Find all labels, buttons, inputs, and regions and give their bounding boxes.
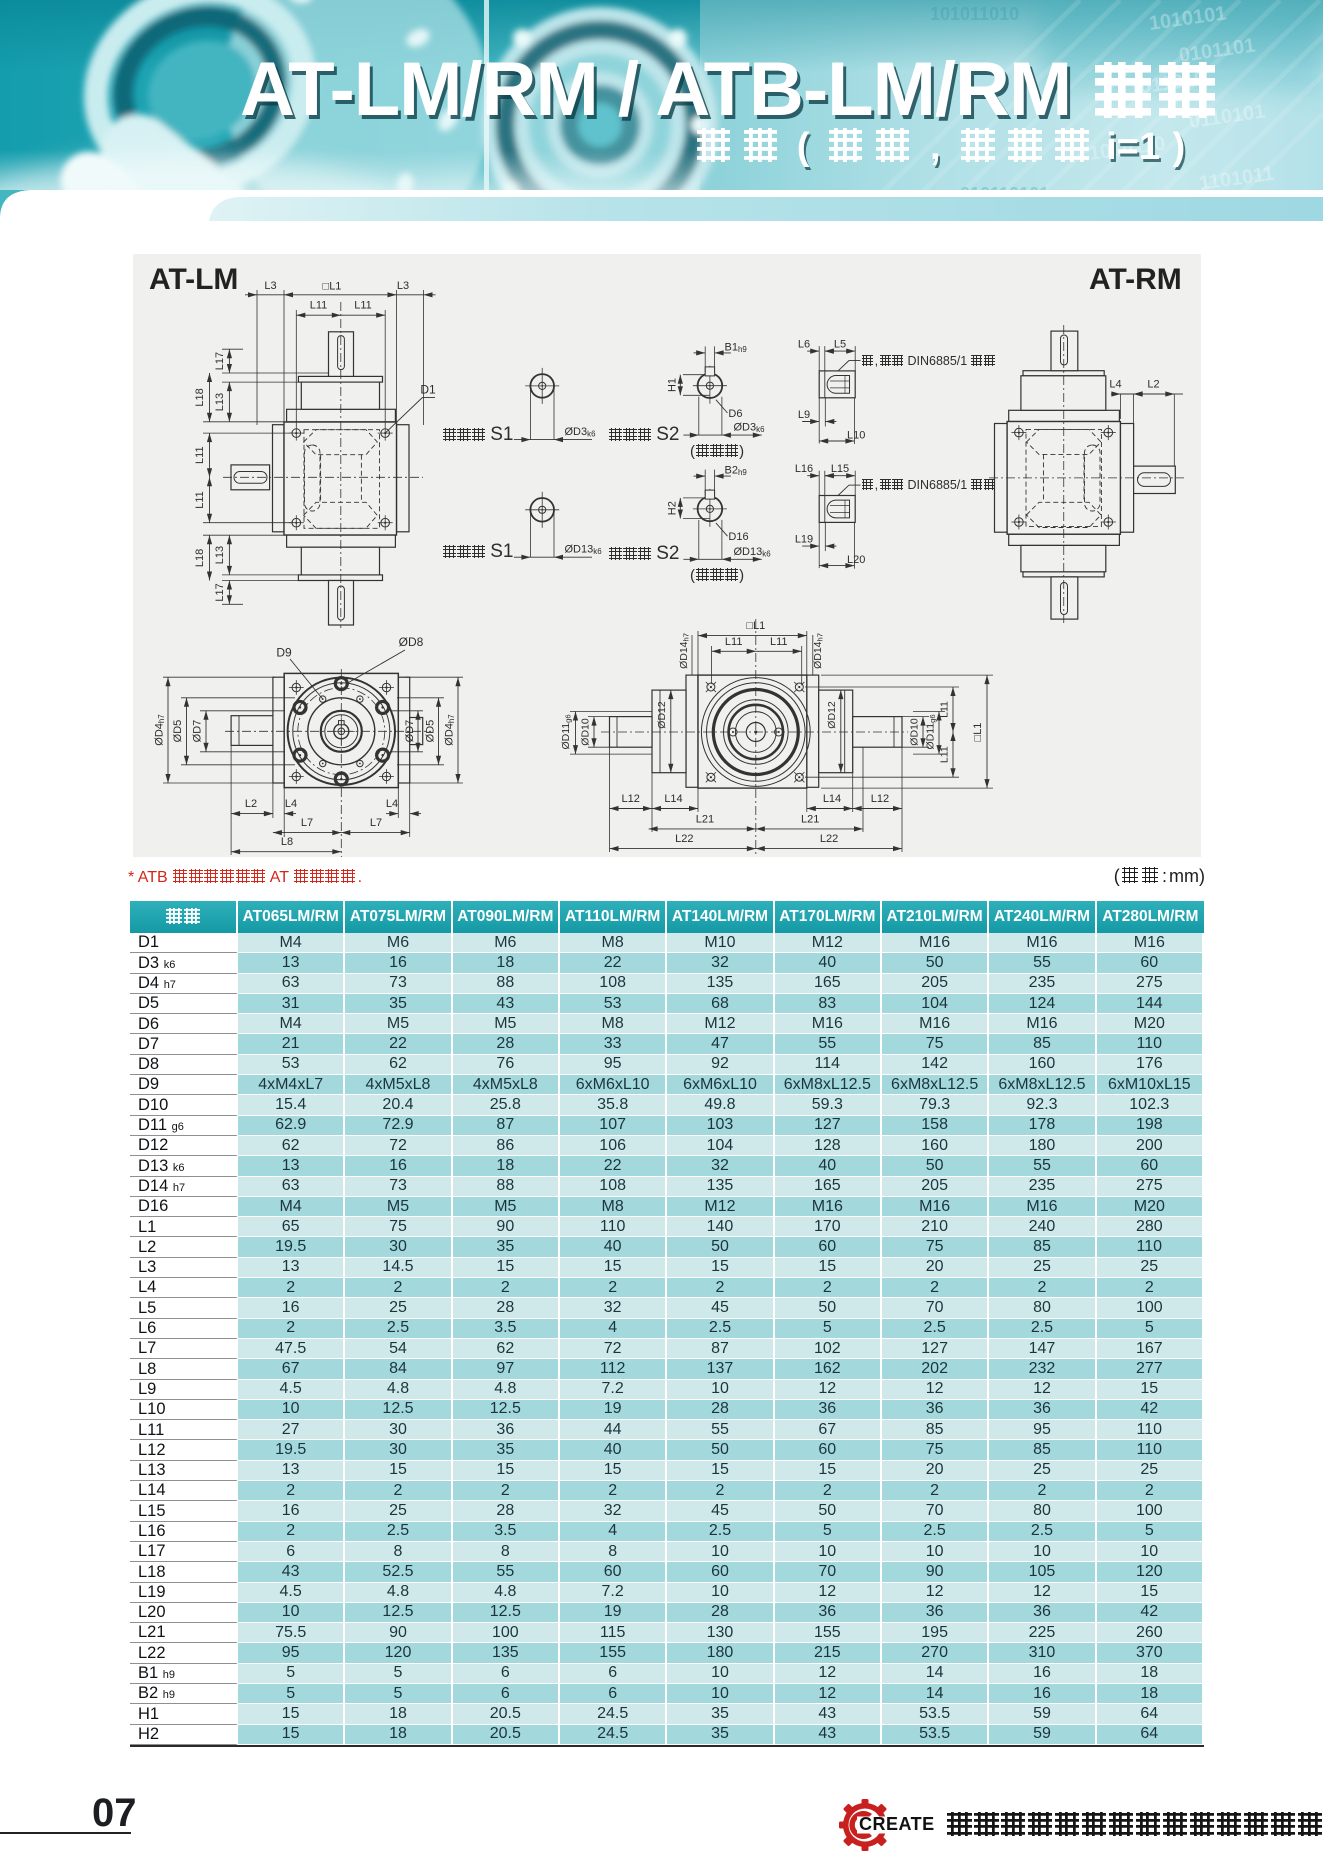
svg-text:D1: D1 (420, 383, 436, 397)
svg-text:ØD12: ØD12 (826, 701, 838, 729)
svg-text:D9: D9 (276, 646, 292, 660)
svg-text:ØD5: ØD5 (172, 720, 184, 743)
svg-text:ØD7: ØD7 (404, 720, 416, 743)
svg-text:L4: L4 (285, 798, 297, 810)
svg-text:L11: L11 (939, 701, 951, 718)
svg-text:D6: D6 (728, 408, 742, 420)
svg-text:ØD10: ØD10 (580, 718, 592, 746)
svg-text:L17: L17 (214, 352, 226, 370)
svg-text:H1: H1 (667, 378, 679, 392)
svg-text:L13: L13 (214, 546, 226, 564)
svg-text:L6: L6 (798, 338, 810, 350)
svg-text:L4: L4 (1109, 379, 1121, 391)
svg-text:L5: L5 (834, 338, 846, 350)
svg-text:L18: L18 (194, 388, 206, 406)
svg-text:L8: L8 (281, 836, 293, 848)
svg-text:L9: L9 (798, 409, 810, 421)
svg-text:L22: L22 (675, 833, 693, 845)
svg-text:H2: H2 (667, 501, 679, 515)
svg-text:L21: L21 (801, 814, 819, 826)
svg-text:L22: L22 (820, 833, 838, 845)
svg-text:ØD12: ØD12 (656, 701, 668, 729)
svg-text:L11: L11 (939, 746, 951, 763)
svg-text:L19: L19 (795, 534, 813, 546)
svg-text:L10: L10 (847, 430, 865, 442)
svg-text:□L1: □L1 (746, 620, 765, 632)
svg-text:L20: L20 (847, 554, 865, 566)
svg-text:ØD5: ØD5 (425, 720, 437, 743)
svg-text:□L1: □L1 (972, 723, 984, 742)
svg-text:L11: L11 (310, 300, 328, 312)
svg-text:L15: L15 (831, 463, 849, 475)
svg-text:L16: L16 (795, 463, 813, 475)
svg-text:CREATE: CREATE (859, 1814, 935, 1834)
svg-text:L17: L17 (214, 583, 226, 601)
svg-text:L7: L7 (301, 817, 313, 829)
svg-text:L4: L4 (386, 798, 398, 810)
svg-text:101011010: 101011010 (930, 4, 1019, 24)
svg-text:L2: L2 (1147, 379, 1159, 391)
svg-text:ØD8: ØD8 (399, 635, 424, 649)
svg-text:L7: L7 (370, 817, 382, 829)
svg-text:□L1: □L1 (323, 281, 342, 293)
svg-text:ØD10: ØD10 (909, 718, 921, 746)
svg-text:L12: L12 (622, 793, 640, 805)
svg-text:L3: L3 (397, 280, 409, 292)
svg-text:L11: L11 (725, 636, 743, 648)
svg-text:D16: D16 (728, 531, 748, 543)
svg-text:L11: L11 (194, 491, 206, 509)
svg-text:L11: L11 (194, 446, 206, 464)
svg-text:L14: L14 (664, 793, 682, 805)
svg-text:L13: L13 (214, 393, 226, 411)
svg-text:L18: L18 (194, 549, 206, 567)
svg-text:L11: L11 (354, 300, 372, 312)
svg-text:L2: L2 (245, 798, 257, 810)
svg-text:L3: L3 (264, 280, 276, 292)
svg-text:L21: L21 (696, 814, 714, 826)
svg-text:L14: L14 (823, 793, 841, 805)
svg-text:ØD7: ØD7 (192, 720, 204, 743)
svg-text:L11: L11 (770, 636, 788, 648)
svg-text:L12: L12 (871, 793, 889, 805)
